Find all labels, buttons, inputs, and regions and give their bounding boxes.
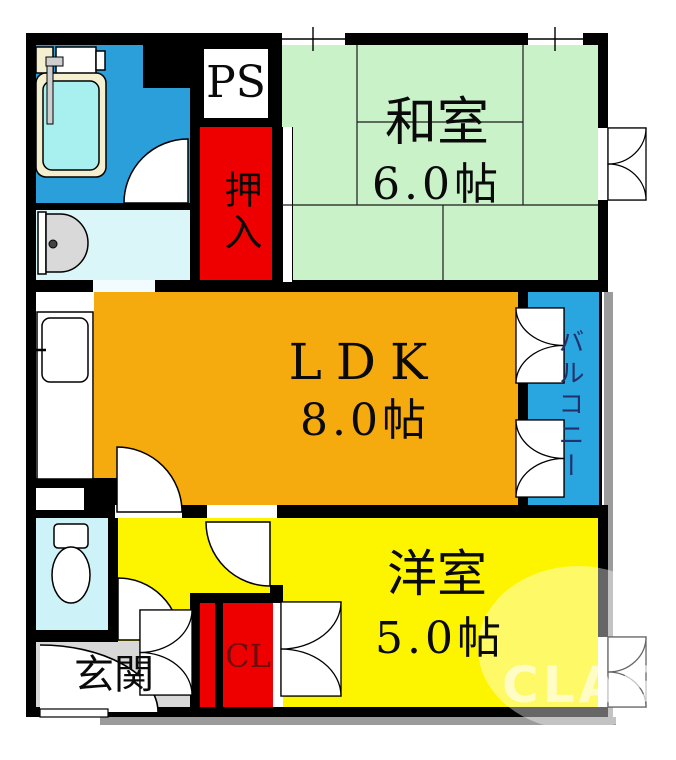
bathroom-door: [124, 139, 188, 203]
toilet-fixture: [52, 524, 90, 603]
floor-plan: PS: [0, 0, 676, 760]
cl-label: CL: [219, 640, 277, 674]
ldk-door: [117, 447, 182, 512]
top-window-lines: [282, 27, 583, 51]
washitsu-label: 和室: [322, 96, 552, 151]
watermark-text: CLAS: [502, 656, 661, 714]
washitsu-size-label: 6.0帖: [322, 162, 552, 208]
entrance-door-leaf: [40, 709, 108, 717]
oshiire-label: 押入: [217, 142, 259, 282]
ldk-size-label: 8.0帖: [240, 398, 490, 444]
balcony-label: バルコニー: [548, 300, 582, 510]
ldk-label: LDK: [240, 336, 490, 389]
washbasin: [38, 212, 88, 274]
yoshitsu-door: [206, 522, 270, 586]
genkan-label: 玄関: [44, 654, 184, 696]
yoshitsu-label: 洋室: [330, 548, 544, 601]
kitchen-counter: [28, 312, 93, 479]
bathtub: [36, 47, 106, 177]
window-washitsu-east: [608, 128, 646, 200]
